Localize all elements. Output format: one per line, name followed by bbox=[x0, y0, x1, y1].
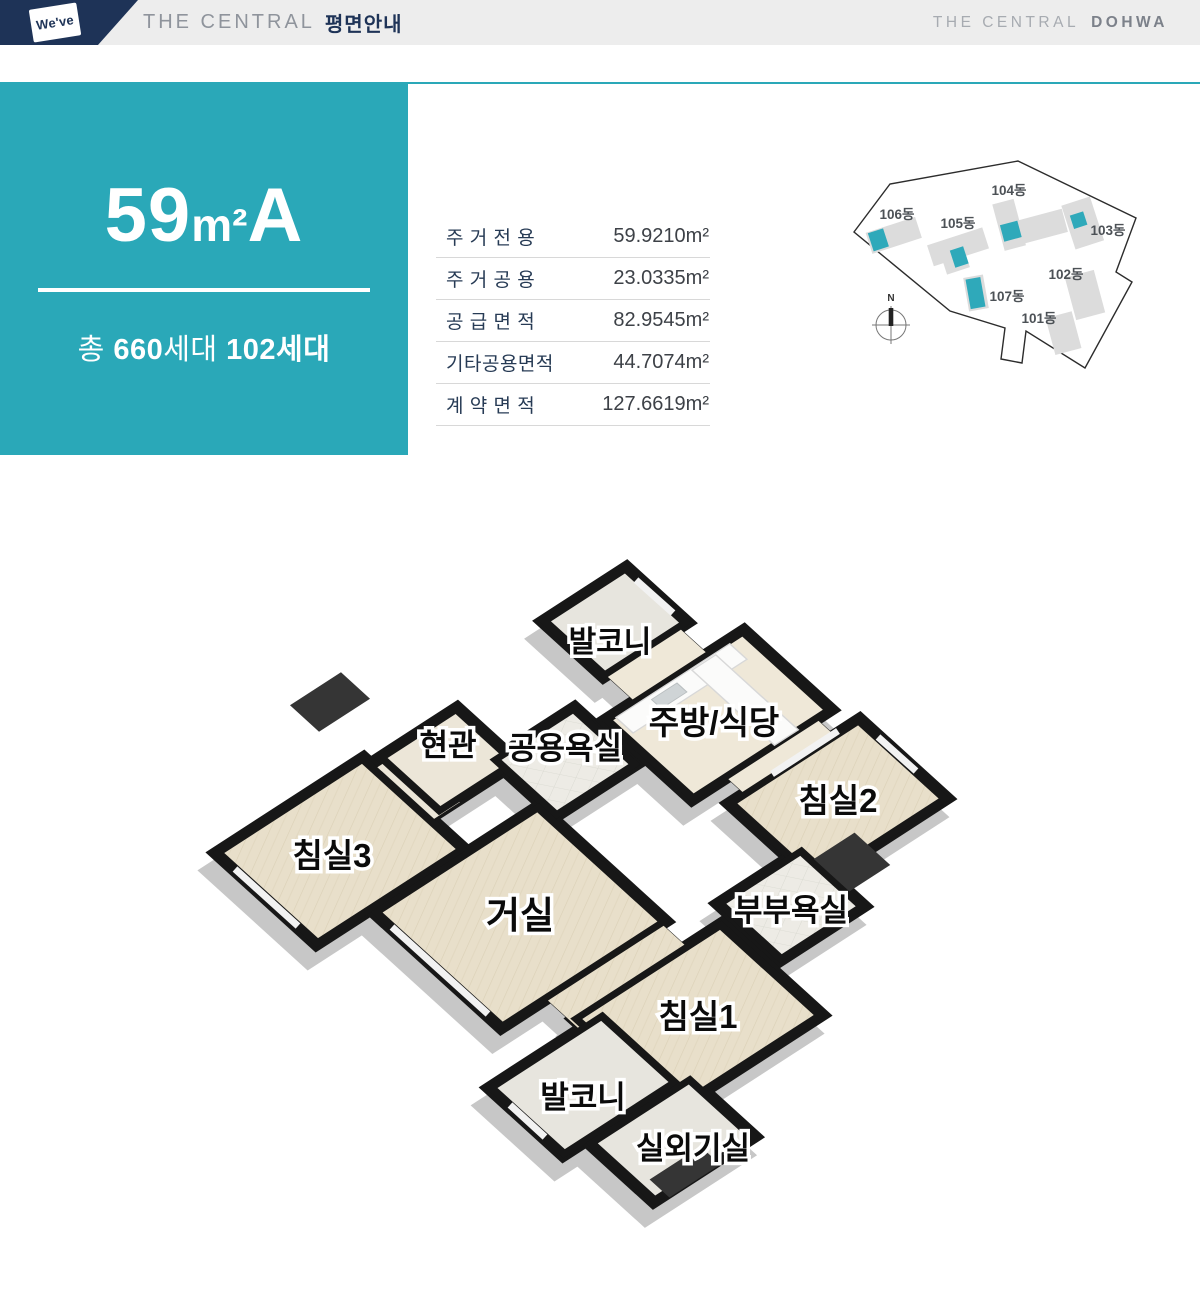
closet-block bbox=[290, 672, 370, 731]
room-label-bedroom1: 침실1 bbox=[658, 998, 737, 1035]
room-label-bedroom2: 침실2 bbox=[798, 782, 877, 819]
room-label-entrance: 현관 bbox=[419, 728, 476, 763]
brochure-page: We've THE CENTRAL 평면안내 THE CENTRAL DOHWA… bbox=[0, 0, 1200, 1303]
room-label-ac-room: 실외기실 bbox=[636, 1131, 750, 1166]
room-label-common-bath: 공용욕실 bbox=[508, 731, 622, 766]
room-label-balcony-top: 발코니 bbox=[569, 626, 652, 659]
floor-plan-3d: 발코니 현관 공용욕실 주방/식당 침실2 침실3 거실 부부욕실 침실1 발코… bbox=[0, 0, 1200, 1303]
room-label-balcony-bottom: 발코니 bbox=[540, 1080, 626, 1115]
room-label-kitchen: 주방/식당 bbox=[649, 704, 780, 741]
room-label-bedroom3: 침실3 bbox=[292, 837, 371, 874]
room-label-master-bath: 부부욕실 bbox=[734, 893, 848, 928]
room-label-living: 거실 bbox=[486, 895, 554, 936]
